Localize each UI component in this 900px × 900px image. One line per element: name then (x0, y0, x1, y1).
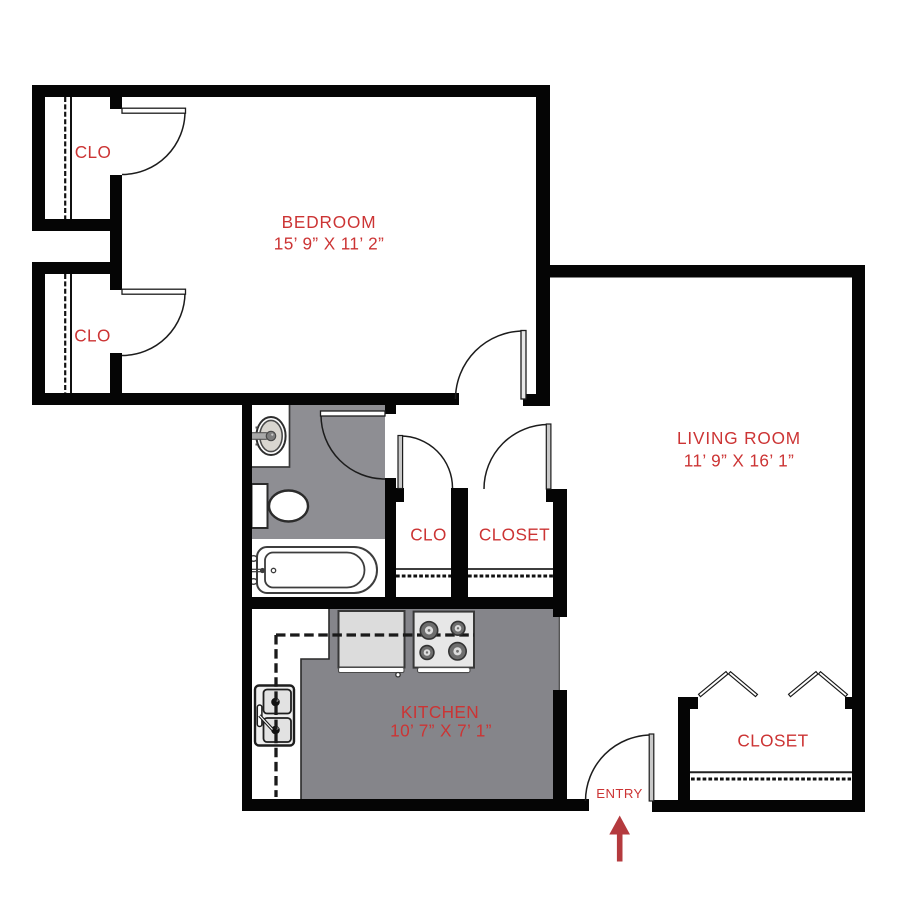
svg-text:KITCHEN: KITCHEN (401, 702, 479, 722)
svg-text:CLO: CLO (75, 142, 112, 162)
svg-text:CLO: CLO (74, 326, 111, 346)
svg-text:ENTRY: ENTRY (596, 786, 642, 801)
svg-text:CLOSET: CLOSET (479, 525, 550, 545)
svg-text:15’ 9” X 11’ 2”: 15’ 9” X 11’ 2” (274, 234, 384, 254)
svg-text:11’ 9” X 16’ 1”: 11’ 9” X 16’ 1” (684, 451, 794, 471)
svg-text:LIVING ROOM: LIVING ROOM (677, 428, 801, 448)
svg-text:CLOSET: CLOSET (737, 731, 808, 751)
svg-text:CLO: CLO (410, 525, 447, 545)
svg-text:10’ 7” X 7’ 1”: 10’ 7” X 7’ 1” (390, 721, 492, 741)
svg-text:BEDROOM: BEDROOM (282, 212, 377, 232)
